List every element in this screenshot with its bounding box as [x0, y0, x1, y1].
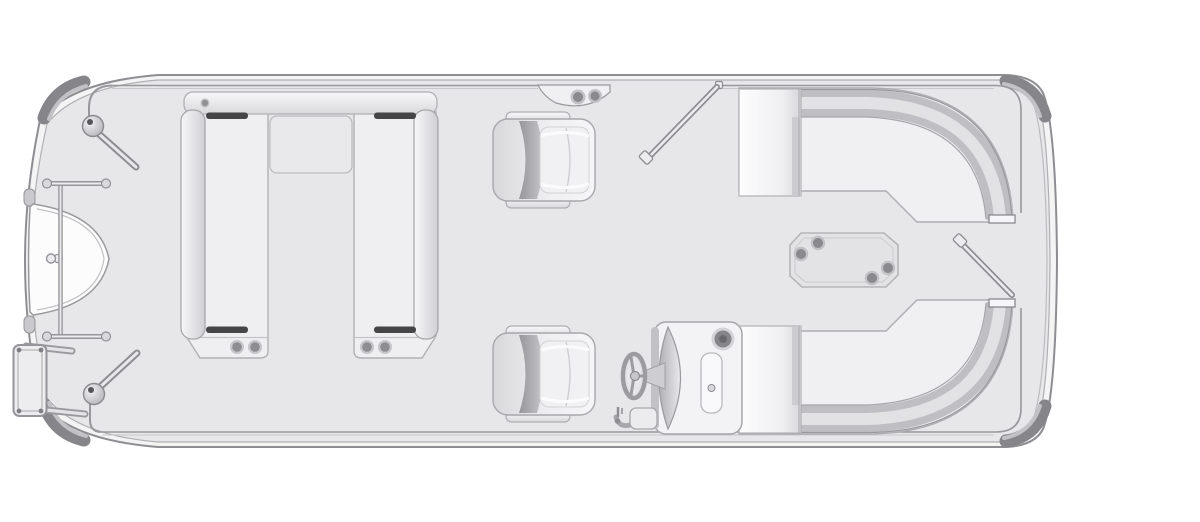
grab-handle [206, 113, 248, 120]
table-top [790, 233, 898, 287]
bow-edge-cap-lower [24, 316, 35, 333]
pontoon-floorplan-page [0, 0, 1200, 522]
instrument-panel [701, 353, 722, 413]
bow-hinge-pin-bottom [88, 387, 94, 393]
bar-ball-end [43, 332, 52, 341]
captain-chair-forward [493, 112, 595, 208]
cup-holder-icon [883, 263, 893, 273]
bar-ball-end [102, 332, 111, 341]
speaker-icon [362, 342, 372, 352]
captain-chair-helm [493, 326, 595, 422]
bar-ball-end [102, 179, 111, 188]
pontoon-floorplan [0, 0, 1200, 522]
ladder-bolt [39, 348, 44, 353]
speaker-icon [250, 342, 260, 352]
cup-holder-icon [796, 249, 806, 259]
ladder-bolt [17, 409, 22, 414]
lounge-center-panel [270, 116, 352, 173]
wheel-hub [631, 372, 640, 381]
grab-handle [374, 327, 416, 334]
speaker-icon [380, 342, 390, 352]
grab-handle [206, 327, 248, 334]
panel-screw-icon [708, 385, 715, 392]
bow-light [47, 254, 56, 263]
bar-ball-end [43, 179, 52, 188]
speaker-icon [232, 342, 242, 352]
bow-hinge-ball-top [83, 116, 104, 137]
gauge-center [719, 335, 727, 343]
lounge-right-armrest [414, 110, 438, 339]
bolster-dot [202, 100, 208, 106]
cocktail-table [790, 233, 898, 287]
grab-handle [374, 113, 416, 120]
console-footrest [630, 408, 657, 429]
lounge-head-bolster [184, 92, 437, 114]
bow-hinge-pin-top [87, 119, 93, 125]
ladder-bolt [39, 409, 44, 414]
speaker-icon [590, 91, 599, 100]
lounge-left-armrest [181, 110, 205, 339]
cup-holder-icon [813, 238, 823, 248]
ladder-bolt [17, 348, 22, 353]
speaker-icon [573, 92, 583, 102]
throttle-knob [615, 418, 621, 424]
bow-hinge-ball-bottom [84, 384, 105, 405]
cup-holder-icon [867, 273, 877, 283]
